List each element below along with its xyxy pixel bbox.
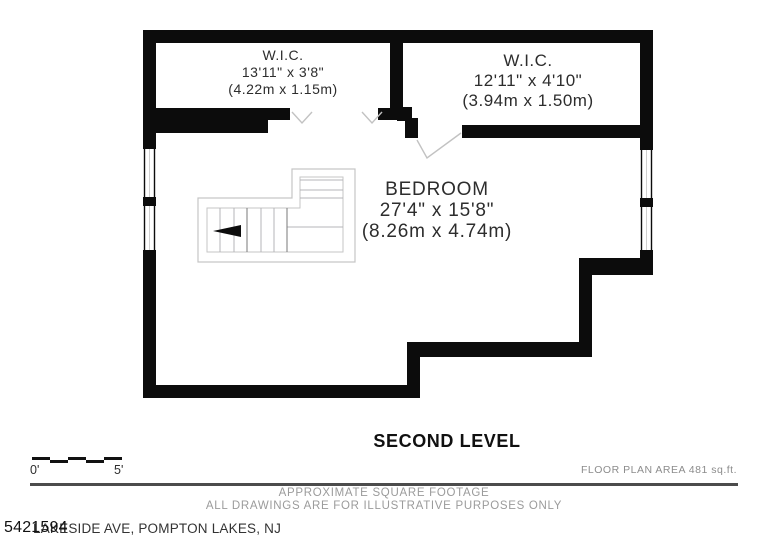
room-label-wic-left: W.I.C. 13'11" x 3'8" (4.22m x 1.15m): [173, 47, 393, 98]
disclaimer-line-2: ALL DRAWINGS ARE FOR ILLUSTRATIVE PURPOS…: [0, 500, 768, 512]
room-dims-metric: (3.94m x 1.50m): [418, 91, 638, 111]
footer-divider-line: [30, 483, 738, 486]
wall-right-lower-stub: [640, 250, 653, 258]
wic-right-bottom-wall: [462, 125, 653, 138]
room-name: BEDROOM: [327, 179, 547, 200]
wall-step-horizontal-1: [407, 342, 592, 357]
room-dims-metric: (4.22m x 1.15m): [173, 81, 393, 98]
stair-treads-dark: [247, 208, 287, 252]
scale-bar-end-label: 5': [114, 463, 123, 477]
property-address: LAKESIDE AVE, POMPTON LAKES, NJ: [33, 521, 281, 536]
wall-top: [143, 30, 653, 43]
room-name: W.I.C.: [173, 47, 393, 64]
door-mark-left: [292, 112, 312, 123]
floorplan-page: W.I.C. 13'11" x 3'8" (4.22m x 1.15m) W.I…: [0, 0, 768, 542]
room-dims-imperial: 12'11" x 4'10": [418, 71, 638, 91]
stair-direction-arrow: [213, 225, 241, 237]
stair-inner-outline: [207, 177, 343, 252]
wic-left-bottom-wall-thick: [156, 118, 268, 133]
door-swing-wic-right: [417, 133, 461, 158]
floor-plan-area-note: FLOOR PLAN AREA 481 sq.ft.: [581, 464, 737, 476]
wall-step-horizontal-2: [579, 258, 653, 275]
scale-bar-start-label: 0': [30, 463, 39, 477]
wall-left-lower: [143, 250, 156, 398]
room-name: W.I.C.: [418, 51, 638, 71]
room-dims-metric: (8.26m x 4.74m): [327, 221, 547, 242]
room-dims-imperial: 13'11" x 3'8": [173, 64, 393, 81]
window-right: [640, 150, 653, 250]
room-label-wic-right: W.I.C. 12'11" x 4'10" (3.94m x 1.50m): [418, 51, 638, 111]
wall-bottom: [143, 385, 420, 398]
listing-number: 5421594: [4, 519, 68, 537]
stair-treads: [220, 180, 343, 252]
window-left: [143, 149, 156, 250]
room-label-bedroom: BEDROOM 27'4" x 15'8" (8.26m x 4.74m): [327, 179, 547, 242]
level-title: SECOND LEVEL: [347, 431, 547, 452]
room-dims-imperial: 27'4" x 15'8": [327, 200, 547, 221]
disclaimer-line-1: APPROXIMATE SQUARE FOOTAGE: [0, 487, 768, 499]
wall-left-upper: [143, 43, 156, 149]
scale-bar: [32, 457, 122, 463]
wic-divider-wall-stub: [405, 118, 418, 138]
door-marks: [292, 112, 461, 158]
